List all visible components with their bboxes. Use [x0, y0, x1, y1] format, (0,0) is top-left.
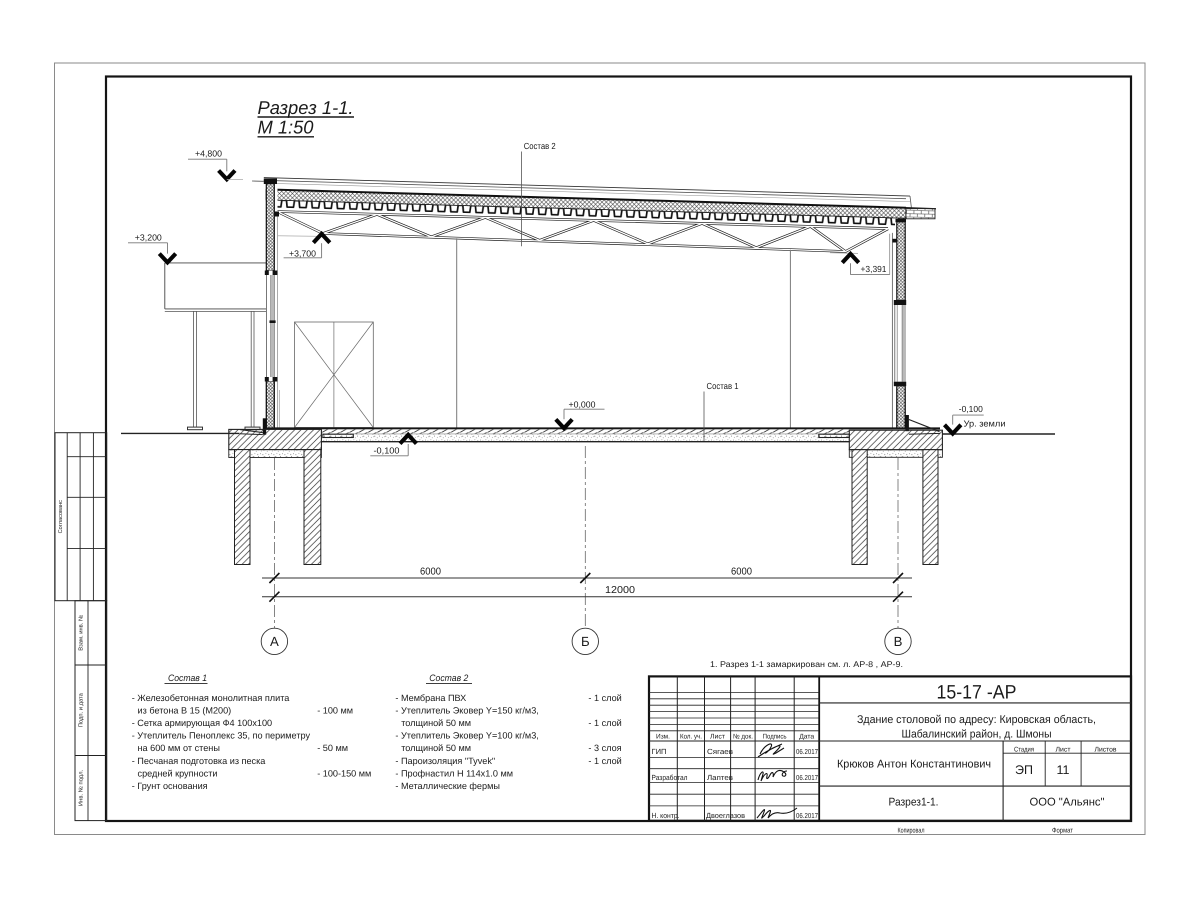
svg-text:- Железобетонная монолитная п: - Железобетонная монолитная плита [132, 693, 291, 703]
svg-text:- 1 слой: - 1 слой [588, 756, 621, 766]
svg-text:- 100-150 мм: - 100-150 мм [317, 768, 371, 778]
svg-text:ООО "Альянс": ООО "Альянс" [1030, 797, 1105, 809]
svg-text:06.2017: 06.2017 [796, 747, 818, 756]
svg-text:на 600 мм от стены: на 600 мм от стены [138, 743, 220, 753]
svg-text:Двоеглазов: Двоеглазов [706, 811, 745, 820]
svg-text:- Профнастил Н 114х1.0 мм: - Профнастил Н 114х1.0 мм [395, 768, 513, 778]
svg-text:- Пароизоляция "Tyvek": - Пароизоляция "Tyvek" [395, 756, 495, 766]
svg-text:+3,700: +3,700 [289, 248, 316, 258]
svg-text:ЭП: ЭП [1015, 763, 1033, 777]
svg-text:Состав 1: Состав 1 [707, 381, 739, 391]
svg-text:Разработал: Разработал [652, 773, 688, 782]
svg-text:Шабалинский район, д. Шмоны: Шабалинский район, д. Шмоны [902, 728, 1052, 740]
svg-text:- Утеплитель Эковер Y=100 кг/м: - Утеплитель Эковер Y=100 кг/м3, [395, 731, 538, 741]
svg-text:- 3 слоя: - 3 слоя [588, 743, 621, 753]
svg-text:Состав 2: Состав 2 [429, 673, 469, 683]
svg-text:Разрез1-1.: Разрез1-1. [889, 797, 939, 809]
svg-text:Лаптев: Лаптев [707, 773, 733, 782]
svg-text:М 1:50: М 1:50 [258, 117, 315, 138]
svg-text:+4,800: +4,800 [195, 149, 222, 159]
svg-text:15-17 -АР: 15-17 -АР [937, 681, 1017, 703]
svg-text:толщиной 50 мм: толщиной 50 мм [401, 718, 471, 728]
svg-text:Ур. земли: Ур. земли [964, 418, 1006, 428]
svg-text:Лист: Лист [1056, 746, 1071, 753]
svg-text:+3,391: +3,391 [861, 264, 887, 274]
svg-text:Разрез 1-1.: Разрез 1-1. [258, 97, 354, 118]
svg-text:Крюков Антон Константинович: Крюков Антон Константинович [837, 758, 991, 770]
svg-text:11: 11 [1057, 763, 1070, 777]
svg-text:А: А [270, 634, 279, 649]
svg-text:12000: 12000 [605, 585, 635, 596]
svg-text:- Утеплитель Эковер Y=150 кг/м: - Утеплитель Эковер Y=150 кг/м3, [395, 706, 538, 716]
svg-text:- 100 мм: - 100 мм [317, 706, 353, 716]
svg-text:Состав 2: Состав 2 [524, 141, 556, 151]
svg-text:Листов: Листов [1095, 746, 1117, 753]
svg-text:Стадия: Стадия [1014, 746, 1034, 753]
svg-text:Подпись: Подпись [763, 734, 787, 741]
svg-text:№ док.: № док. [733, 734, 753, 741]
svg-text:1. Разрез 1-1 замаркирован см.: 1. Разрез 1-1 замаркирован см. л. АР-8 ,… [710, 659, 903, 669]
svg-text:Б: Б [581, 634, 590, 649]
svg-text:Копировал: Копировал [898, 827, 925, 834]
svg-text:Подп. и дата: Подп. и дата [78, 692, 84, 727]
svg-text:Формат: Формат [1052, 827, 1074, 834]
svg-text:толщиной 50 мм: толщиной 50 мм [401, 743, 471, 753]
svg-text:Инв. № подл.: Инв. № подл. [78, 770, 84, 806]
svg-text:- Утеплитель Пеноплекс 35, по: - Утеплитель Пеноплекс 35, по периметру [132, 731, 311, 741]
svg-text:Здание столовой по адресу: Кир: Здание столовой по адресу: Кировская обл… [857, 714, 1096, 726]
svg-text:Сягаев: Сягаев [707, 747, 733, 756]
svg-text:- 1 слой: - 1 слой [588, 693, 621, 703]
svg-text:В: В [894, 634, 903, 649]
svg-text:- Металлические фермы: - Металлические фермы [395, 781, 500, 791]
svg-text:Согласованс: Согласованс [58, 500, 64, 534]
svg-text:06.2017: 06.2017 [796, 773, 818, 782]
svg-text:ГИП: ГИП [652, 747, 667, 756]
svg-text:Взам. инв. №: Взам. инв. № [78, 615, 84, 651]
svg-text:- Песчаная подготовка из песка: - Песчаная подготовка из песка [132, 756, 267, 766]
svg-text:Лист: Лист [710, 734, 725, 741]
svg-text:- Сетка армирующая Ф4 100х100: - Сетка армирующая Ф4 100х100 [132, 718, 272, 728]
svg-text:06.2017: 06.2017 [796, 811, 818, 820]
svg-text:- Мембрана ПВХ: - Мембрана ПВХ [395, 693, 466, 703]
svg-text:Кол. уч.: Кол. уч. [680, 734, 702, 741]
svg-text:Н. контр.: Н. контр. [652, 811, 680, 820]
svg-text:+0,000: +0,000 [569, 400, 596, 410]
svg-text:Дата: Дата [799, 734, 814, 741]
svg-text:средней крупности: средней крупности [138, 768, 218, 778]
svg-text:Изм.: Изм. [656, 734, 670, 741]
svg-text:-0,100: -0,100 [374, 445, 400, 455]
svg-text:+3,200: +3,200 [135, 233, 162, 243]
svg-text:- 50 мм: - 50 мм [317, 743, 348, 753]
svg-text:-0,100: -0,100 [959, 404, 983, 414]
svg-text:Состав 1: Состав 1 [168, 673, 207, 683]
svg-text:- Грунт основания: - Грунт основания [132, 781, 208, 791]
svg-text:6000: 6000 [731, 566, 752, 577]
svg-text:из бетона В 15 (М200): из бетона В 15 (М200) [138, 706, 232, 716]
svg-text:- 1 слой: - 1 слой [588, 718, 621, 728]
svg-text:6000: 6000 [420, 566, 441, 577]
